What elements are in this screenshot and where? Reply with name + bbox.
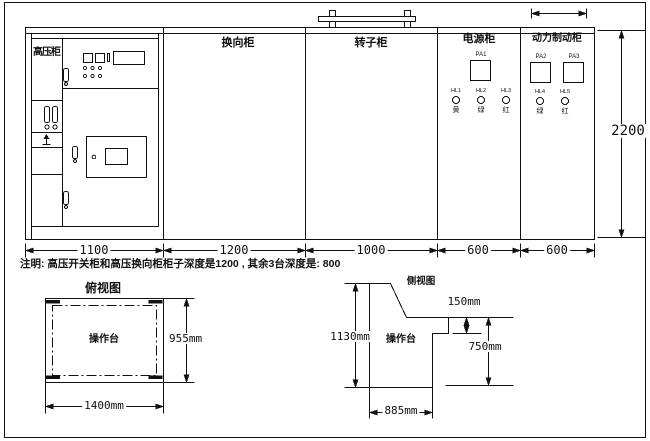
rotor-cabinet-label: 转子柜 [355, 38, 388, 49]
door-window-inner [106, 149, 128, 165]
cabinet-row-outline [26, 28, 595, 240]
indicator-lamp-icon [453, 97, 460, 104]
indicator-lamp-icon [562, 98, 569, 105]
door-handle-icon [64, 192, 69, 205]
cabinet-layout-drawing: 高压柜 换向柜 转子柜 电源柜 动力制动柜 PA1 HL1 HL2 HL3 黄 … [0, 0, 650, 441]
meter-label: PA1 [476, 52, 487, 58]
lock-dot-icon [65, 83, 68, 86]
dim-600-brake: 600 [544, 244, 570, 256]
power-cabinet-devices [453, 61, 510, 104]
dim-750mm: 750mm [466, 341, 503, 352]
dim-1200: 1200 [218, 244, 251, 256]
lamp-color-label: 黄 [453, 107, 460, 114]
lamp-color-label: 红 [562, 108, 569, 115]
top-view-figure [46, 299, 195, 414]
top-view-title: 俯视图 [85, 282, 121, 294]
meter-label: PA3 [569, 54, 580, 60]
front-view [26, 9, 595, 240]
dim-1100: 1100 [78, 244, 111, 256]
lamp-color-label: 绿 [537, 108, 544, 115]
relay-box-icon [96, 54, 105, 63]
brake-width-marker [532, 9, 587, 19]
note-text: 注明: 高压开关柜和高压换向柜柜子深度是1200 , 其余3台深度是: 800 [20, 259, 340, 270]
meter-box-icon [471, 61, 491, 81]
meter-box-icon [531, 63, 551, 83]
meter-label: PA2 [536, 54, 547, 60]
dim-150mm: 150mm [447, 296, 480, 307]
drawing-border [5, 3, 646, 438]
fuse-bar-icon [45, 107, 50, 123]
dim-955mm: 955mm [167, 333, 204, 344]
lamp-label: HL1 [451, 89, 461, 95]
width-dimension-chain [26, 244, 595, 258]
indicator-lamp-icon [478, 97, 485, 104]
lock-dot-icon [74, 160, 77, 163]
brake-cabinet-devices [531, 63, 584, 105]
meter-box-icon [564, 63, 584, 83]
hv-cabinet-internals [32, 34, 159, 240]
keyhole-icon [92, 155, 96, 159]
dim-600-power: 600 [465, 244, 491, 256]
lamp-label: HL4 [535, 90, 545, 96]
drawing-linework [0, 0, 650, 441]
dim-2200: 2200 [609, 124, 647, 138]
reversing-cabinet-label: 换向柜 [222, 38, 255, 49]
brake-cabinet-label: 动力制动柜 [532, 34, 582, 44]
small-lamp-icon [53, 125, 57, 129]
up-arrow-icon [43, 134, 51, 145]
lamp-color-label: 绿 [478, 107, 485, 114]
relay-box-icon [84, 54, 93, 63]
side-view-title: 侧视图 [407, 277, 436, 287]
lamp-label: HL5 [560, 90, 570, 96]
lamp-color-label: 红 [503, 107, 510, 114]
rotor-lifting-bar [319, 11, 416, 28]
door-handle-icon [64, 69, 69, 82]
door-handle-icon [73, 147, 78, 159]
lock-dot-icon [65, 206, 68, 209]
dim-1000: 1000 [355, 244, 388, 256]
console-label-top-view: 操作台 [89, 335, 119, 345]
small-lamp-icon [45, 125, 49, 129]
dim-1130mm: 1130mm [328, 331, 372, 342]
indicator-lamp-icon [537, 98, 544, 105]
lamp-label: HL2 [476, 89, 486, 95]
switch-bar-icon [108, 54, 110, 62]
meter-display-icon [114, 52, 145, 65]
indicator-lamp-icon [503, 97, 510, 104]
console-label-side-view: 操作台 [386, 335, 416, 345]
fuse-bar-icon [53, 107, 58, 123]
lamp-label: HL3 [501, 89, 511, 95]
dim-885mm: 885mm [382, 405, 419, 416]
power-cabinet-label: 电源柜 [463, 34, 496, 45]
hv-cabinet-label: 高压柜 [33, 48, 62, 58]
dim-1400mm: 1400mm [82, 400, 126, 411]
